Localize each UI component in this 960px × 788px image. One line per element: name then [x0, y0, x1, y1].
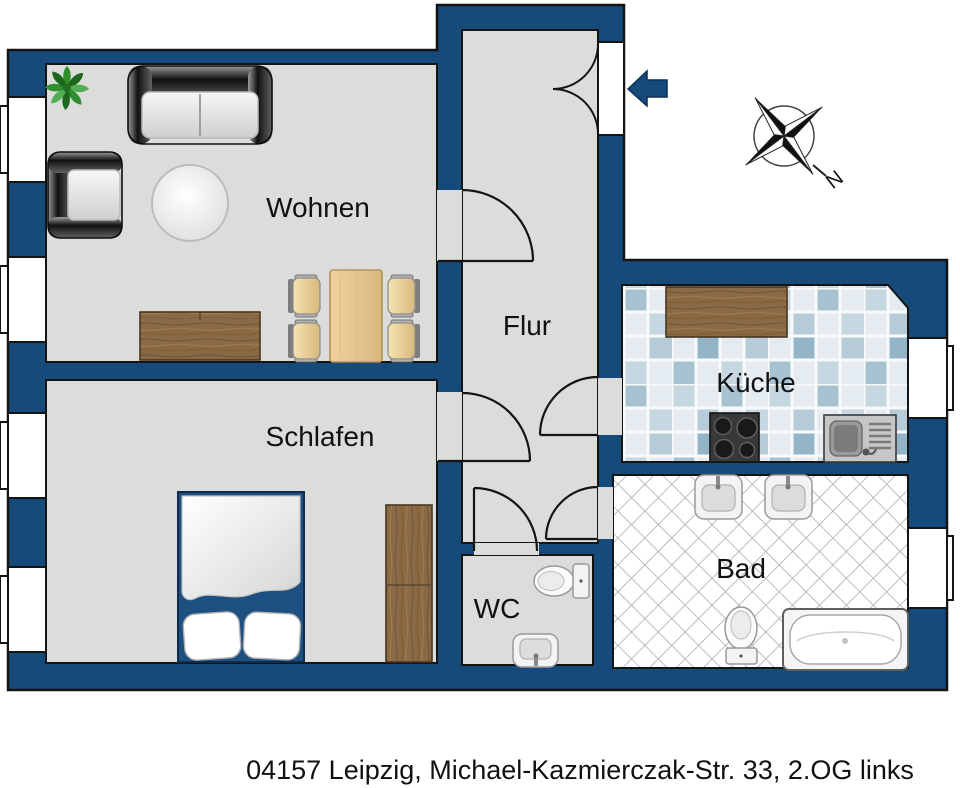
doorway-wc	[474, 543, 539, 555]
window	[8, 97, 46, 182]
compass-north-label: N	[822, 166, 848, 193]
dining-chair	[288, 275, 320, 317]
label-flur: Flur	[503, 310, 551, 341]
room-flur-floor	[462, 30, 598, 543]
entrance-arrow-icon	[628, 71, 667, 106]
kitchen-counter	[666, 287, 787, 337]
window	[8, 257, 46, 342]
doorway-bad	[598, 487, 613, 539]
bath-sink	[765, 475, 812, 519]
floor-plan-canvas: N Wohnen Flur Küche Schlafen WC Bad 0415…	[0, 0, 960, 788]
stove	[710, 413, 759, 462]
round-rug	[152, 165, 228, 241]
armchair	[48, 152, 122, 238]
doorway-wohnen	[437, 190, 462, 261]
entrance-door-opening	[598, 42, 624, 135]
bath-sink	[695, 475, 742, 519]
window	[8, 567, 46, 652]
sideboard	[140, 312, 260, 360]
label-bad: Bad	[716, 553, 766, 584]
bed	[178, 492, 304, 662]
kitchen-sink	[824, 415, 896, 462]
label-wc: WC	[474, 593, 521, 624]
dining-table	[330, 270, 382, 362]
doorway-schlafen	[437, 392, 462, 461]
dining-chair	[288, 320, 320, 362]
doorway-kueche	[598, 378, 622, 435]
dining-chair	[388, 320, 420, 362]
window	[8, 413, 46, 498]
bath-toilet	[725, 607, 757, 664]
dining-chair	[388, 275, 420, 317]
window	[908, 528, 947, 608]
wc-washbasin	[513, 634, 558, 667]
address-caption: 04157 Leipzig, Michael-Kazmierczak-Str. …	[246, 755, 914, 785]
sofa	[128, 66, 272, 144]
compass-icon: N	[746, 98, 848, 194]
label-kueche: Küche	[716, 367, 795, 398]
wc-toilet	[534, 564, 589, 598]
label-schlafen: Schlafen	[266, 421, 375, 452]
wardrobe	[386, 505, 432, 662]
window	[908, 338, 947, 418]
label-wohnen: Wohnen	[266, 192, 370, 223]
bathtub	[783, 609, 908, 670]
floor-plan: N Wohnen Flur Küche Schlafen WC Bad 0415…	[0, 0, 960, 788]
